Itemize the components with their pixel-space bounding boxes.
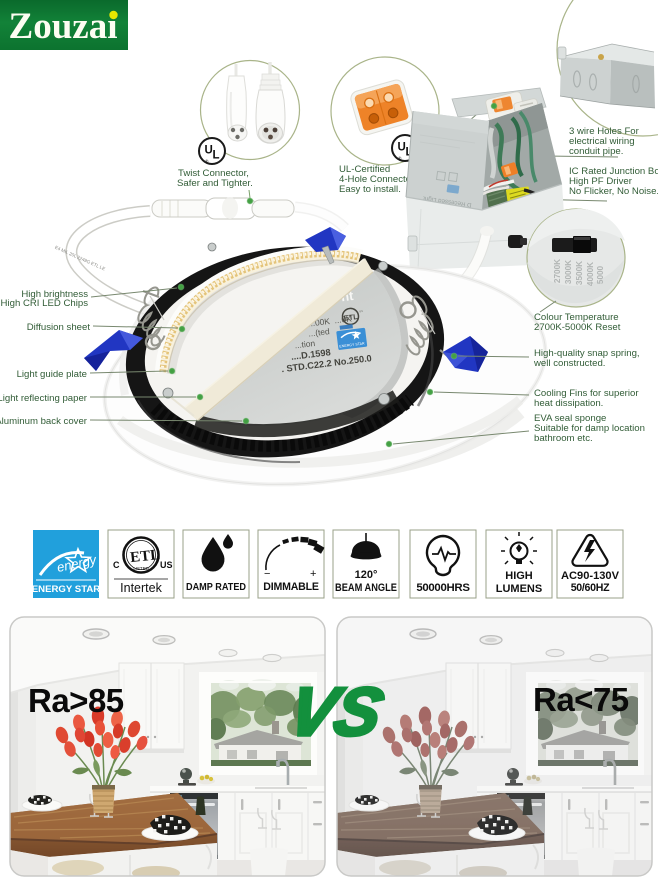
svg-text:4000K: 4000K xyxy=(586,262,595,286)
svg-text:Diffusion sheet: Diffusion sheet xyxy=(27,322,91,333)
svg-text:AC90-130V: AC90-130V xyxy=(561,570,619,582)
svg-text:2700K-5000K Reset: 2700K-5000K Reset xyxy=(534,322,621,333)
svg-text:2700K: 2700K xyxy=(553,259,562,283)
svg-text:C: C xyxy=(113,560,120,570)
svg-text:L: L xyxy=(213,150,220,162)
svg-text:High CRI LED Chips: High CRI LED Chips xyxy=(1,298,89,309)
svg-text:Light guide plate: Light guide plate xyxy=(17,369,87,380)
svg-text:ENERGY STAR: ENERGY STAR xyxy=(32,584,100,595)
svg-text:well constructed.: well constructed. xyxy=(533,358,605,369)
svg-text:heat dissipation.: heat dissipation. xyxy=(534,398,603,409)
svg-text:+: + xyxy=(310,568,316,580)
svg-text:DAMP RATED: DAMP RATED xyxy=(186,582,246,593)
svg-text:VS: VS xyxy=(282,674,389,750)
svg-text:Aluminum back cover: Aluminum back cover xyxy=(0,416,88,427)
svg-text:DIMMABLE: DIMMABLE xyxy=(263,581,319,593)
svg-text:HIGH: HIGH xyxy=(505,570,533,582)
svg-text:Zouzai: Zouzai xyxy=(9,6,118,47)
svg-text:50/60HZ: 50/60HZ xyxy=(571,582,610,594)
svg-text:Ra<75: Ra<75 xyxy=(533,681,629,718)
svg-text:US: US xyxy=(160,560,173,570)
svg-text:Easy to install.: Easy to install. xyxy=(339,184,401,195)
svg-text:3000K: 3000K xyxy=(564,260,573,284)
svg-text:3500K: 3500K xyxy=(575,261,584,285)
svg-text:Intertek: Intertek xyxy=(120,581,162,595)
svg-text:conduit pipe.: conduit pipe. xyxy=(569,146,623,157)
svg-text:Ra>85: Ra>85 xyxy=(28,682,124,719)
svg-text:50000HRS: 50000HRS xyxy=(416,582,470,594)
svg-text:LUMENS: LUMENS xyxy=(496,583,542,595)
svg-text:bathroom etc.: bathroom etc. xyxy=(534,433,593,444)
svg-text:Light reflecting paper: Light reflecting paper xyxy=(0,393,88,404)
svg-text:−: − xyxy=(264,568,270,580)
svg-text:BEAM ANGLE: BEAM ANGLE xyxy=(335,582,397,594)
svg-text:LISTED: LISTED xyxy=(133,566,148,571)
svg-text:5000: 5000 xyxy=(596,265,605,284)
svg-text:ETL: ETL xyxy=(129,547,161,566)
svg-text:ETL: ETL xyxy=(343,312,359,323)
svg-text:Safer and Tighter.: Safer and Tighter. xyxy=(177,178,253,189)
svg-text:120°: 120° xyxy=(355,569,378,581)
svg-text:No Flicker, No Noise.: No Flicker, No Noise. xyxy=(569,186,658,197)
